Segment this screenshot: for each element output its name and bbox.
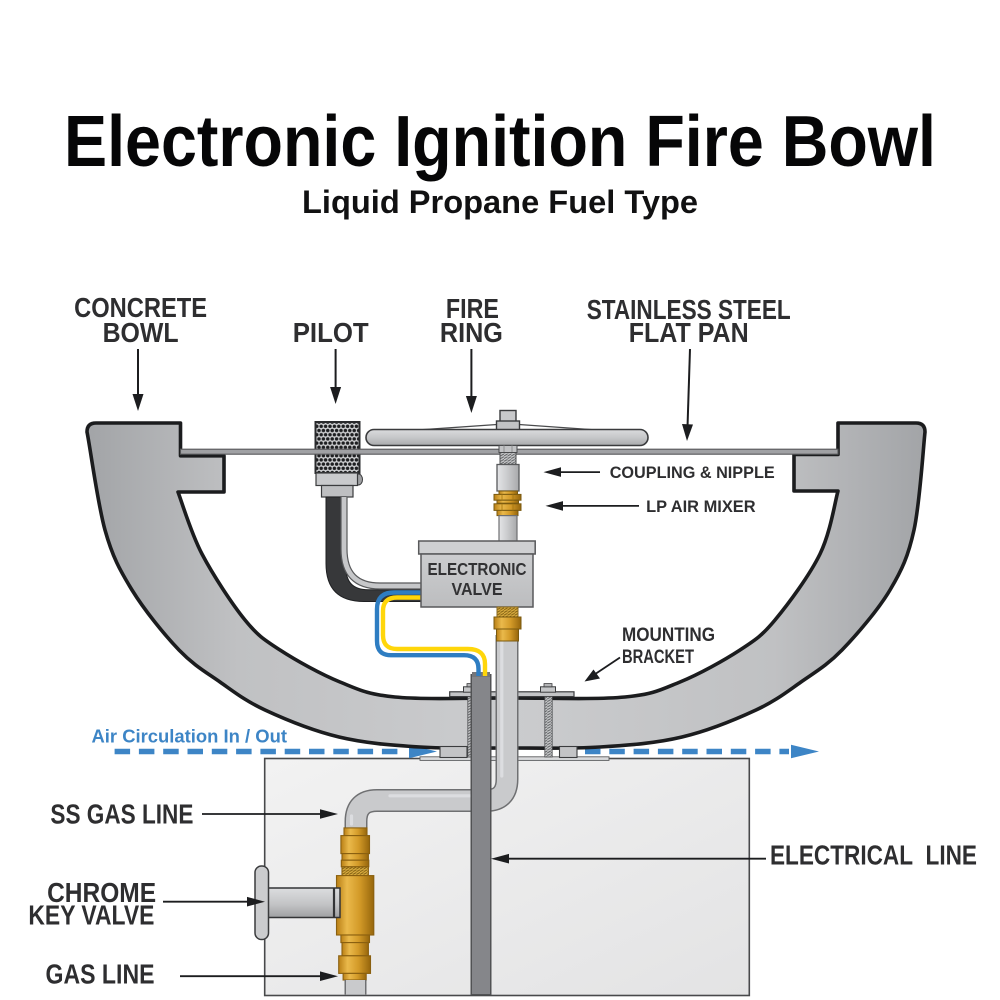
svg-text:Liquid Propane Fuel Type: Liquid Propane Fuel Type xyxy=(302,184,698,220)
svg-text:BOWL: BOWL xyxy=(103,317,179,348)
svg-text:Air Circulation In / Out: Air Circulation In / Out xyxy=(92,726,288,747)
svg-text:SS GAS LINE: SS GAS LINE xyxy=(50,799,193,830)
svg-text:FLAT PAN: FLAT PAN xyxy=(629,317,749,348)
svg-text:ELECTRICAL LINE: ELECTRICAL LINE xyxy=(770,840,977,871)
svg-text:ELECTRONIC: ELECTRONIC xyxy=(428,559,527,579)
svg-text:KEY VALVE: KEY VALVE xyxy=(28,900,154,931)
svg-text:MOUNTING: MOUNTING xyxy=(622,624,715,646)
svg-text:GAS LINE: GAS LINE xyxy=(46,959,155,990)
svg-text:VALVE: VALVE xyxy=(452,579,503,599)
svg-text:RING: RING xyxy=(440,317,503,348)
svg-text:COUPLING & NIPPLE: COUPLING & NIPPLE xyxy=(610,463,775,482)
svg-text:LP AIR MIXER: LP AIR MIXER xyxy=(646,497,756,516)
svg-text:Electronic Ignition Fire Bowl: Electronic Ignition Fire Bowl xyxy=(64,102,936,182)
svg-text:BRACKET: BRACKET xyxy=(622,646,694,668)
svg-text:PILOT: PILOT xyxy=(293,317,369,348)
